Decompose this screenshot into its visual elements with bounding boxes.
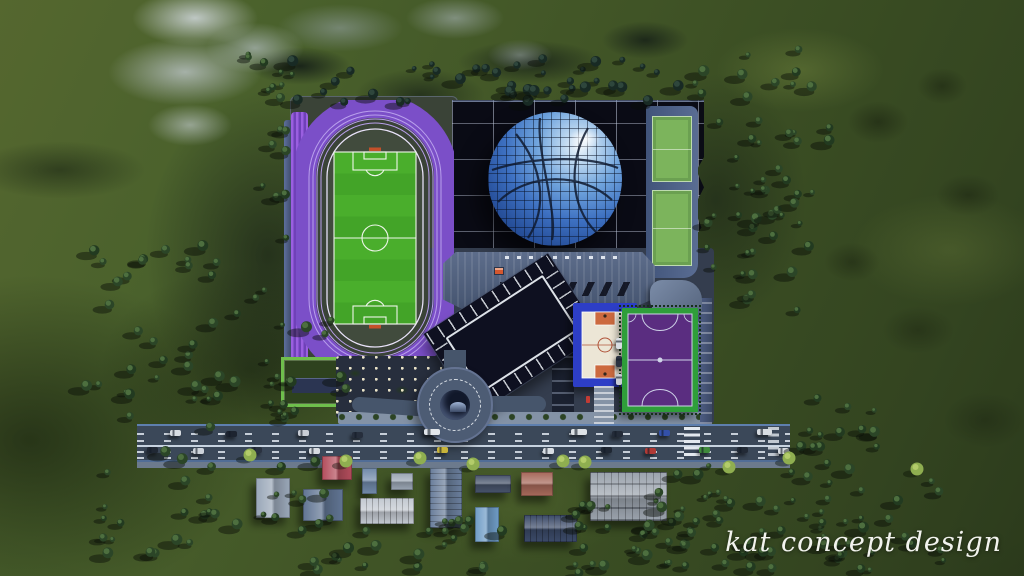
tree (646, 69, 660, 78)
tree (111, 389, 135, 405)
tree (775, 129, 794, 141)
tree (267, 492, 279, 500)
tree (804, 394, 822, 405)
tree (866, 408, 877, 415)
tree (515, 85, 540, 101)
tree (270, 409, 282, 417)
tree (433, 527, 448, 537)
tree (258, 140, 277, 152)
tree (96, 469, 110, 478)
tree (336, 67, 355, 79)
tree (684, 65, 709, 81)
hydrant (586, 396, 590, 403)
goal-north (369, 148, 381, 152)
tree (585, 560, 609, 576)
tree (716, 496, 729, 504)
watermark-text: kat concept design (725, 527, 1002, 558)
tree (122, 326, 143, 339)
tree (258, 87, 272, 96)
house (360, 498, 414, 524)
tree (112, 272, 132, 285)
tree (500, 90, 517, 101)
tree (565, 510, 580, 520)
tree (595, 524, 611, 534)
goal-south (369, 325, 381, 329)
tree (784, 498, 796, 506)
tree (712, 559, 730, 570)
tree (127, 254, 148, 268)
tree (848, 425, 867, 437)
crosswalk (684, 427, 700, 459)
tree (93, 300, 115, 314)
tree (685, 80, 698, 88)
tree (673, 506, 685, 514)
tree (267, 126, 285, 137)
deciduous-tree (903, 463, 924, 478)
tree (742, 496, 765, 511)
tree (416, 527, 433, 538)
tree (399, 548, 424, 564)
tree (285, 490, 297, 498)
tree (272, 69, 284, 77)
south-sidewalk (137, 462, 790, 468)
tree (265, 93, 285, 106)
tree (175, 262, 193, 273)
tree (753, 177, 766, 185)
tree (866, 443, 880, 452)
tree (752, 186, 767, 195)
tree (660, 80, 684, 96)
tree (263, 381, 274, 388)
house (475, 475, 511, 493)
soccer-field (334, 148, 416, 329)
tree (283, 71, 295, 79)
tree (316, 514, 333, 525)
tree (100, 276, 122, 290)
tree (737, 134, 756, 146)
tree (215, 376, 240, 392)
tree (127, 256, 146, 269)
tree (557, 77, 574, 88)
tree (662, 470, 683, 483)
tree (568, 501, 588, 514)
tree (260, 400, 274, 409)
tree (288, 495, 306, 507)
tree (737, 213, 762, 229)
tree (852, 515, 864, 523)
tree (598, 504, 610, 512)
tree (566, 562, 579, 570)
tree (739, 52, 751, 60)
tree (729, 183, 740, 190)
tree (249, 58, 268, 70)
tree (812, 509, 825, 517)
tree (784, 190, 802, 202)
tree (935, 558, 947, 565)
tree (655, 538, 673, 549)
tree (150, 245, 170, 258)
tree (626, 547, 641, 557)
tree (794, 81, 817, 96)
tree (280, 407, 299, 419)
tree (764, 505, 780, 515)
tree (435, 542, 447, 550)
tree (574, 524, 587, 532)
tree (683, 517, 700, 528)
tree (261, 83, 277, 93)
tree (300, 564, 323, 576)
tree (185, 396, 197, 404)
tree (737, 250, 751, 259)
tree (624, 546, 637, 555)
tree (321, 552, 340, 564)
tree (781, 67, 801, 80)
tree (462, 64, 481, 76)
tree (861, 567, 872, 574)
tree (402, 562, 423, 575)
tree (87, 381, 102, 391)
tree (581, 506, 593, 514)
tree (442, 535, 457, 545)
tree (533, 86, 552, 98)
tree (177, 340, 197, 353)
tree (880, 495, 903, 510)
tree (448, 523, 469, 536)
tree (441, 73, 465, 89)
house (430, 468, 462, 528)
tree (773, 266, 797, 281)
tree (561, 510, 581, 523)
tree (702, 510, 720, 522)
tree (304, 519, 324, 532)
tree (737, 223, 758, 236)
tree (586, 78, 600, 87)
house (475, 507, 499, 542)
house (391, 473, 413, 490)
tree (696, 495, 708, 503)
tree (244, 294, 259, 304)
tree (91, 258, 107, 268)
tree (168, 476, 190, 490)
tree (733, 271, 746, 279)
tree (174, 351, 193, 363)
tree (422, 61, 435, 69)
tree (272, 82, 285, 90)
tree (569, 543, 588, 555)
tree (810, 135, 834, 151)
house (362, 468, 377, 494)
tree (191, 385, 208, 396)
tree (644, 488, 664, 501)
tree (785, 130, 797, 138)
tree (730, 92, 753, 107)
tree (352, 527, 370, 539)
tree (198, 509, 219, 523)
tree (133, 547, 155, 561)
tree (737, 290, 756, 302)
tree (496, 81, 517, 94)
tree (612, 57, 625, 66)
tree (329, 542, 354, 558)
tree (672, 562, 689, 573)
tree (680, 469, 704, 484)
tree (357, 540, 381, 556)
tree (157, 534, 182, 550)
tree (509, 84, 534, 100)
tree (564, 568, 584, 576)
tree (203, 258, 221, 269)
tree (504, 61, 521, 72)
tree (750, 186, 770, 199)
tree (728, 212, 742, 221)
tree (729, 294, 752, 309)
tree (196, 494, 213, 505)
tree (89, 547, 113, 563)
tree (577, 56, 601, 71)
tree (744, 188, 756, 195)
tree (631, 520, 654, 535)
tree (117, 389, 129, 397)
tree (746, 117, 763, 128)
tree (750, 140, 761, 147)
tree (484, 526, 507, 541)
tree (786, 307, 801, 317)
tree (836, 519, 849, 527)
glass-dome (488, 112, 622, 246)
tree (772, 212, 785, 220)
tree (797, 513, 810, 521)
tree (850, 487, 865, 497)
tree (835, 403, 851, 414)
tree (201, 391, 223, 405)
tree (491, 86, 516, 102)
tree (771, 176, 791, 189)
tree (198, 508, 212, 517)
tree (218, 518, 242, 534)
tree (267, 373, 281, 382)
house (521, 472, 553, 496)
tree (629, 530, 648, 542)
tree (439, 519, 456, 530)
tree (758, 231, 778, 244)
tree (798, 427, 813, 437)
tree (803, 442, 825, 456)
skylight (494, 267, 504, 275)
tree (687, 89, 706, 101)
tree (480, 68, 501, 82)
tree (422, 67, 441, 79)
tree (700, 543, 719, 555)
rooftop-courts-strip (646, 106, 698, 278)
tree (468, 561, 488, 574)
tree (466, 563, 488, 576)
tree (184, 240, 208, 256)
tree (320, 77, 340, 90)
tree (643, 502, 667, 518)
tree (701, 491, 713, 499)
tree (799, 443, 818, 455)
tree (672, 541, 688, 551)
tree (471, 64, 490, 76)
tree (714, 498, 735, 512)
tree (754, 209, 778, 224)
tree (735, 269, 757, 283)
house (256, 478, 290, 518)
tree (176, 256, 191, 266)
tree (566, 81, 591, 97)
tree (253, 512, 266, 520)
rooftop-court (652, 116, 692, 182)
tree (859, 428, 879, 441)
tree (287, 526, 307, 539)
tree (831, 463, 855, 479)
tree (453, 516, 474, 530)
tree (706, 516, 723, 527)
tree (661, 511, 684, 526)
tree (733, 562, 756, 576)
tree (763, 206, 782, 218)
tree (595, 80, 618, 95)
tree (198, 271, 216, 283)
tree (201, 371, 225, 386)
tree (261, 513, 279, 525)
tree (760, 78, 779, 91)
tree (856, 426, 880, 441)
house (590, 472, 667, 521)
tree (239, 52, 251, 60)
tree (676, 528, 696, 541)
roundabout-sculpture (450, 402, 466, 412)
tree (756, 563, 776, 576)
tree (140, 548, 160, 561)
tree (783, 81, 796, 89)
tree (258, 359, 270, 367)
tree (791, 241, 813, 255)
tree (656, 560, 670, 569)
tree (178, 539, 194, 549)
tree (706, 213, 717, 220)
tree (255, 287, 267, 295)
tree (96, 504, 108, 512)
tree (924, 487, 943, 500)
tree (820, 480, 833, 488)
tree (657, 518, 676, 530)
tree (724, 69, 748, 84)
tree (103, 537, 115, 545)
tree (273, 55, 298, 71)
tree (803, 190, 815, 198)
tree (261, 192, 282, 205)
tree (224, 310, 241, 321)
tree (355, 562, 369, 571)
tree (298, 557, 319, 571)
tree (816, 495, 832, 505)
tree (707, 118, 724, 129)
tree (188, 510, 209, 524)
rooftop-court (652, 190, 692, 266)
tree (89, 533, 108, 545)
tree (424, 74, 435, 81)
tree (791, 472, 812, 486)
tree (727, 155, 740, 163)
roundabout (417, 367, 493, 443)
east-perimeter-wall (698, 298, 712, 424)
tree (816, 124, 833, 135)
tree (107, 519, 124, 530)
tree (275, 412, 289, 421)
tree (659, 559, 672, 567)
tree (874, 514, 893, 527)
tree (139, 337, 158, 349)
tree (810, 432, 824, 441)
tree (563, 521, 584, 534)
tree (628, 549, 653, 565)
tree (94, 536, 106, 544)
crosswalk (768, 427, 779, 459)
tree (307, 488, 329, 502)
tree (666, 539, 690, 554)
tree (560, 85, 576, 95)
tree (783, 137, 802, 149)
tree (791, 221, 803, 229)
tree (581, 561, 596, 571)
house (303, 489, 343, 521)
tree (814, 459, 831, 470)
tree (435, 518, 448, 527)
tree (501, 92, 512, 99)
tree (785, 46, 802, 57)
tree (633, 64, 646, 72)
tree (677, 526, 695, 537)
tree (200, 396, 212, 404)
tree (177, 380, 201, 396)
tree (527, 54, 547, 67)
house (524, 515, 577, 542)
court-walkway (594, 386, 614, 424)
tree (171, 361, 194, 376)
tree (603, 81, 627, 96)
tree (329, 556, 342, 564)
tree (171, 508, 189, 520)
tree (780, 469, 795, 478)
roundabout-east-road (488, 396, 546, 412)
tree (93, 515, 106, 524)
tree (573, 66, 586, 74)
tree (444, 516, 463, 528)
tree (406, 66, 417, 73)
tree (196, 318, 219, 333)
futsal-court (622, 308, 698, 412)
tree (631, 521, 654, 536)
tree (535, 70, 546, 77)
tree (765, 165, 783, 176)
tree (237, 54, 252, 64)
tree (642, 528, 659, 539)
aerial-render: kat concept design (0, 0, 1024, 576)
tree (823, 427, 845, 441)
tree (921, 478, 935, 487)
tree (68, 380, 92, 396)
tree (846, 564, 866, 576)
tree (117, 412, 134, 423)
tree (148, 356, 168, 369)
tree (148, 375, 160, 383)
tree (709, 489, 722, 497)
tree (741, 248, 756, 258)
tree (574, 501, 596, 515)
tree (253, 183, 266, 191)
tree (114, 364, 136, 378)
